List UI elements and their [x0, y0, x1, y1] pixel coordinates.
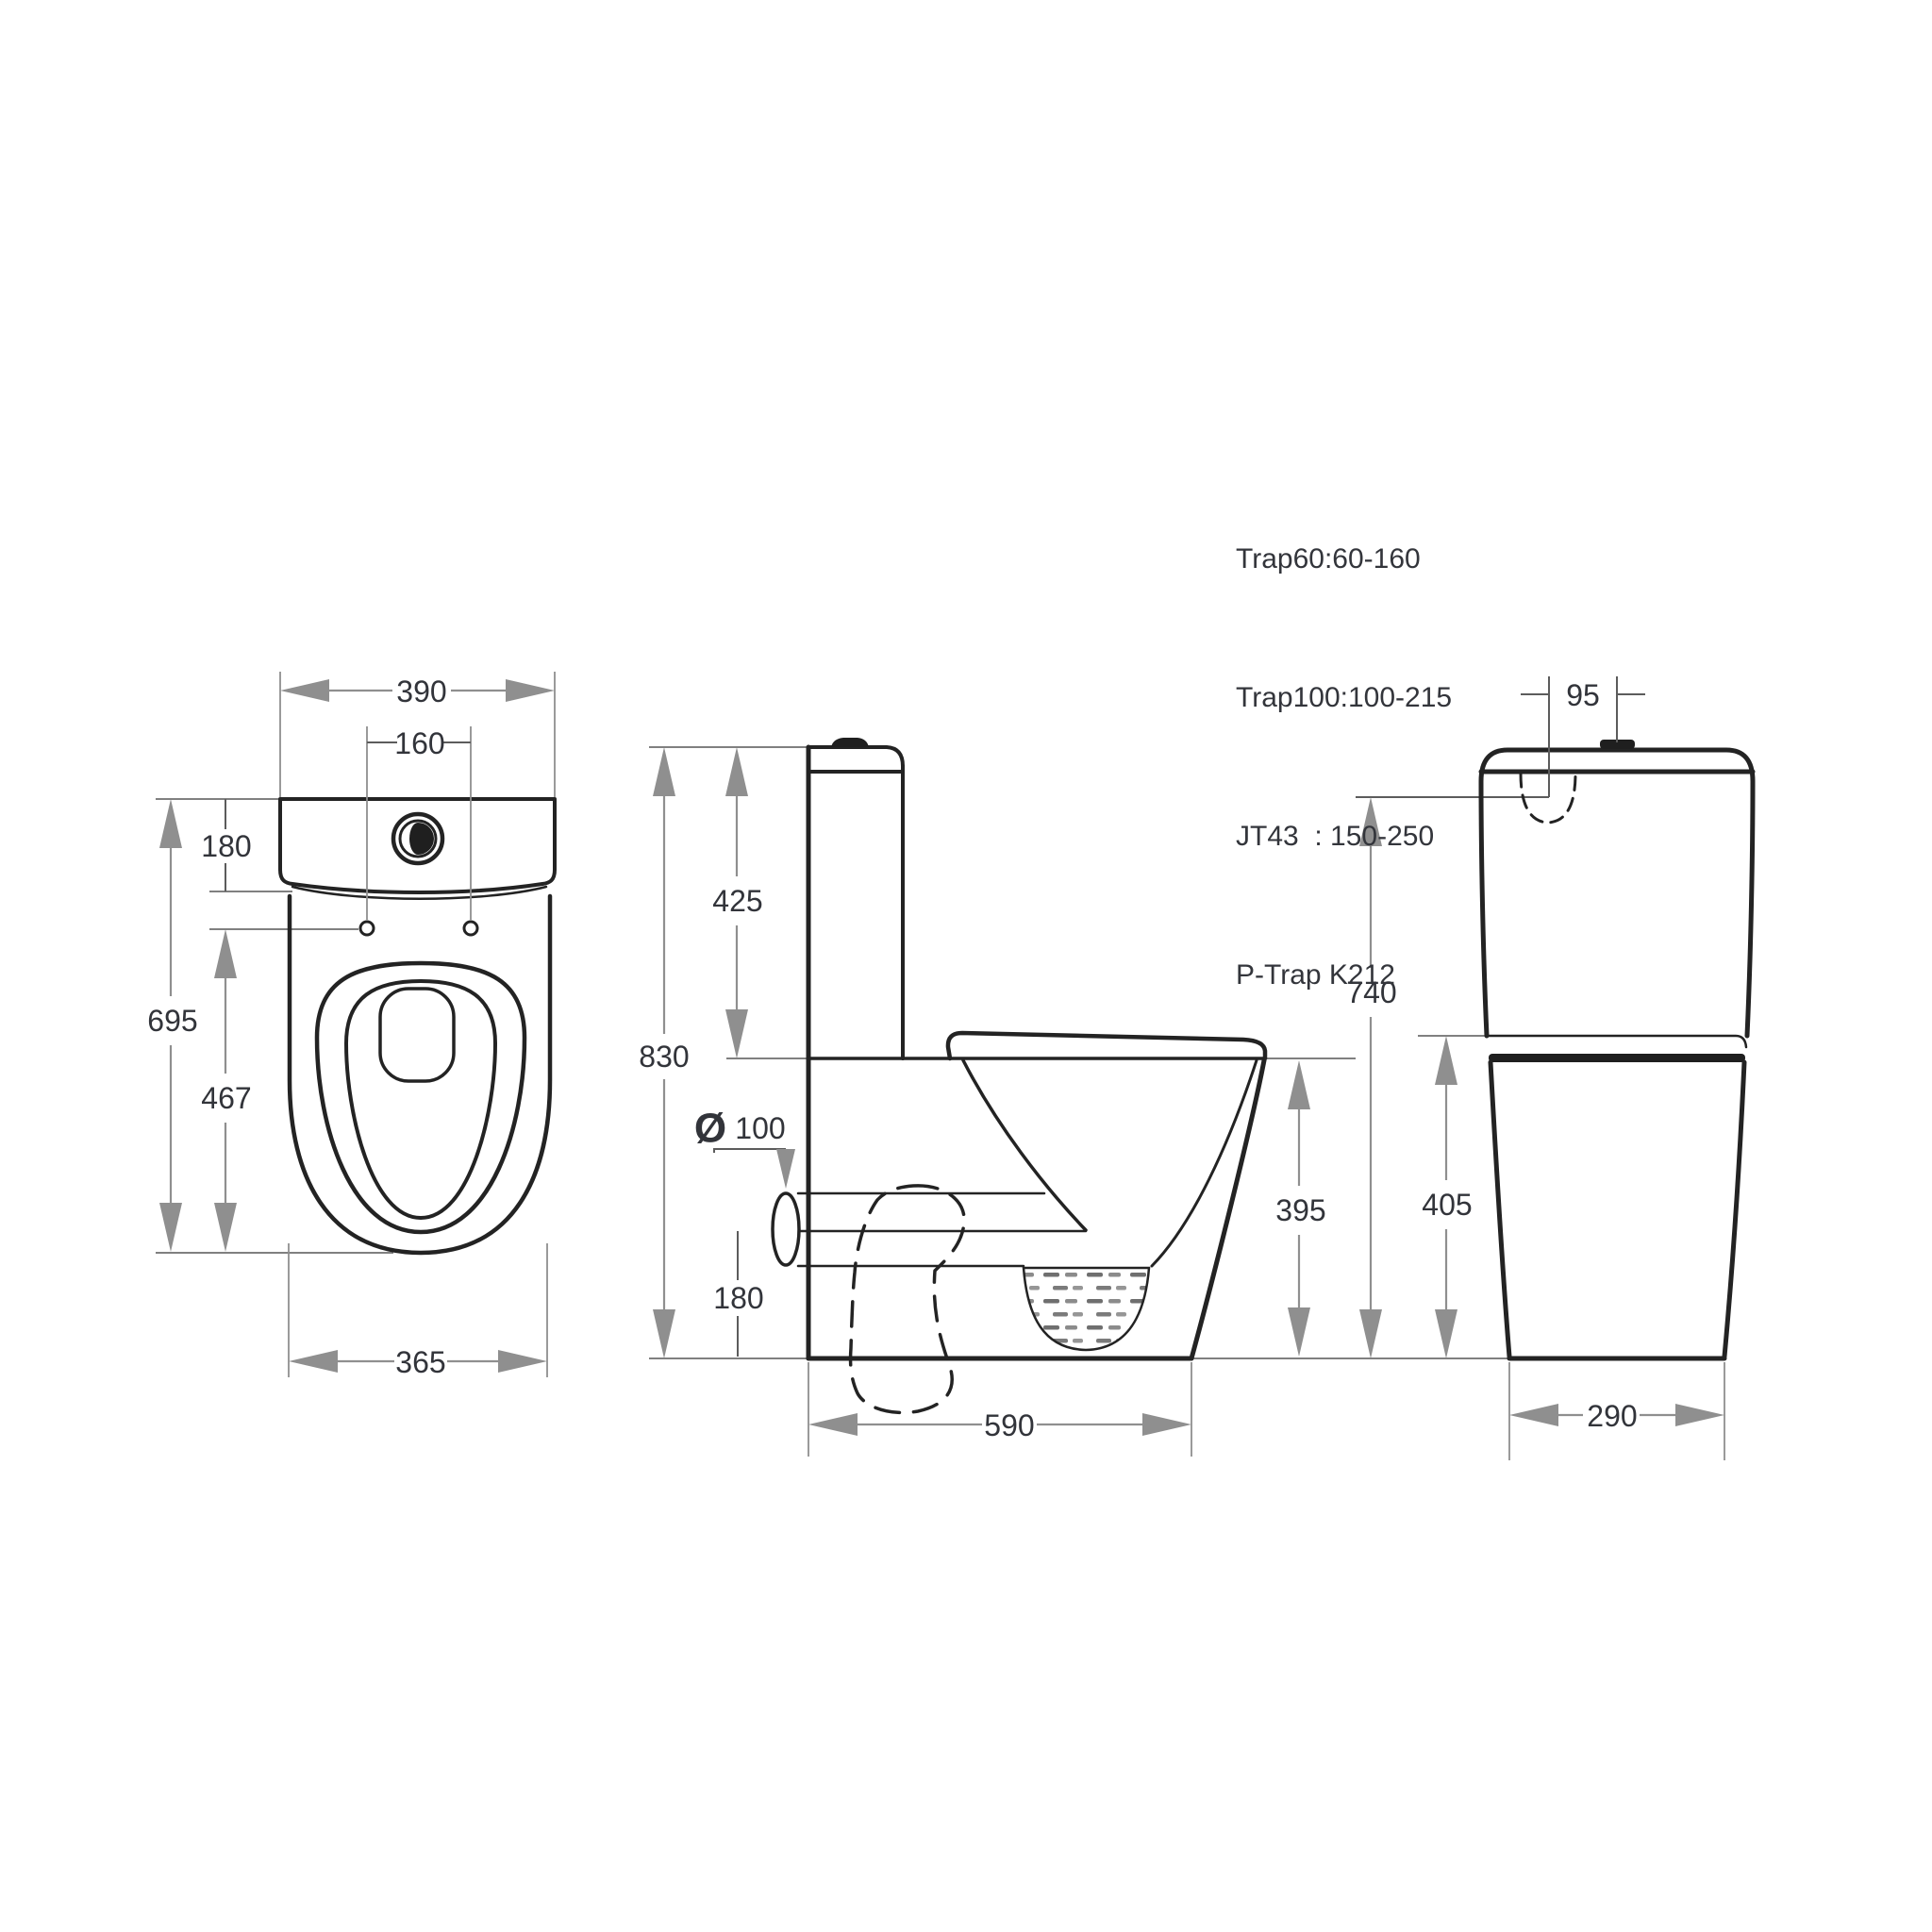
- dim-outlet-diameter-value: 100: [735, 1111, 785, 1145]
- flush-button-side: [831, 738, 869, 747]
- dim-total-height: 830: [639, 747, 689, 1358]
- dim-width-top-value: 390: [396, 675, 446, 708]
- dim-tank-height: 425: [712, 747, 762, 1058]
- diameter-symbol: Ø: [694, 1106, 726, 1152]
- bowl-outer-front: [1191, 1060, 1264, 1358]
- dim-total-height-value: 830: [639, 1040, 689, 1074]
- dim-tank-depth: 180: [201, 799, 251, 891]
- bowl-funnel-back: [963, 1060, 1086, 1230]
- dim-tank-height-value: 425: [712, 884, 762, 918]
- base-right-profile: [1724, 1062, 1744, 1357]
- dim-total-length: 695: [147, 799, 197, 1252]
- dim-base-width-value: 290: [1587, 1399, 1637, 1433]
- dim-hole-spacing-value: 160: [394, 726, 444, 760]
- seat-hole-left: [360, 922, 374, 935]
- dim-width-bottom: 365: [289, 1243, 547, 1379]
- seat-ring-inner: [346, 981, 495, 1218]
- trap-note-line-1: Trap60:60-160: [1236, 536, 1452, 582]
- trap-note-line-4: P-Trap K212: [1236, 952, 1452, 998]
- outlet-leader-arrow: [776, 1149, 795, 1189]
- dim-button-offset: 95: [1521, 676, 1645, 797]
- trap-notes: Trap60:60-160 Trap100:100-215 JT43 : 150…: [1236, 443, 1452, 1091]
- water-area: [1024, 1268, 1149, 1350]
- toilet-dimension-drawing: 390 160 180 695 467: [0, 0, 1932, 1932]
- dim-total-length-value: 695: [147, 1004, 197, 1038]
- trap-dashed-outline: [851, 1186, 965, 1413]
- dim-holes-to-front: 467: [201, 929, 251, 1252]
- pedestal-plan-outline: [290, 896, 550, 1253]
- outlet-pipe-ellipse: [773, 1193, 799, 1265]
- technical-drawing-page: 390 160 180 695 467: [0, 0, 1932, 1932]
- top-view: 390 160 180 695 467: [147, 672, 555, 1379]
- dim-outlet-center-height: 180: [713, 1231, 763, 1357]
- seat-top-line-front: [1488, 1036, 1746, 1047]
- trap-note-line-2: Trap100:100-215: [1236, 675, 1452, 721]
- callout-outlet-diameter: Ø 100: [694, 1106, 795, 1190]
- dim-button-offset-value: 95: [1566, 678, 1600, 712]
- dim-rim-height-value: 395: [1275, 1193, 1325, 1227]
- trap-note-line-3: JT43 : 150-250: [1236, 813, 1452, 859]
- dim-total-depth: 590: [808, 1362, 1191, 1457]
- dim-holes-to-front-value: 467: [201, 1081, 251, 1115]
- seat-band-front: [1489, 1054, 1745, 1062]
- dim-bowl-height-value: 405: [1422, 1188, 1472, 1222]
- dim-base-width: 290: [1509, 1362, 1724, 1460]
- dim-total-depth-value: 590: [984, 1408, 1034, 1442]
- dim-rim-height: 395: [1275, 1060, 1325, 1357]
- cistern-top-edge: [808, 747, 903, 766]
- dim-outlet-center-height-value: 180: [713, 1281, 763, 1315]
- cistern-front-outline: [1481, 750, 1753, 1036]
- dim-width-bottom-value: 365: [395, 1345, 445, 1379]
- seat-lid-side: [948, 1033, 1265, 1058]
- outlet-lines: [798, 1193, 1086, 1266]
- seat-hole-right: [464, 922, 477, 935]
- dim-tank-depth-value: 180: [201, 829, 251, 863]
- sump-outline: [380, 989, 454, 1081]
- base-left-profile: [1491, 1062, 1509, 1357]
- seat-ring-outer: [317, 963, 525, 1232]
